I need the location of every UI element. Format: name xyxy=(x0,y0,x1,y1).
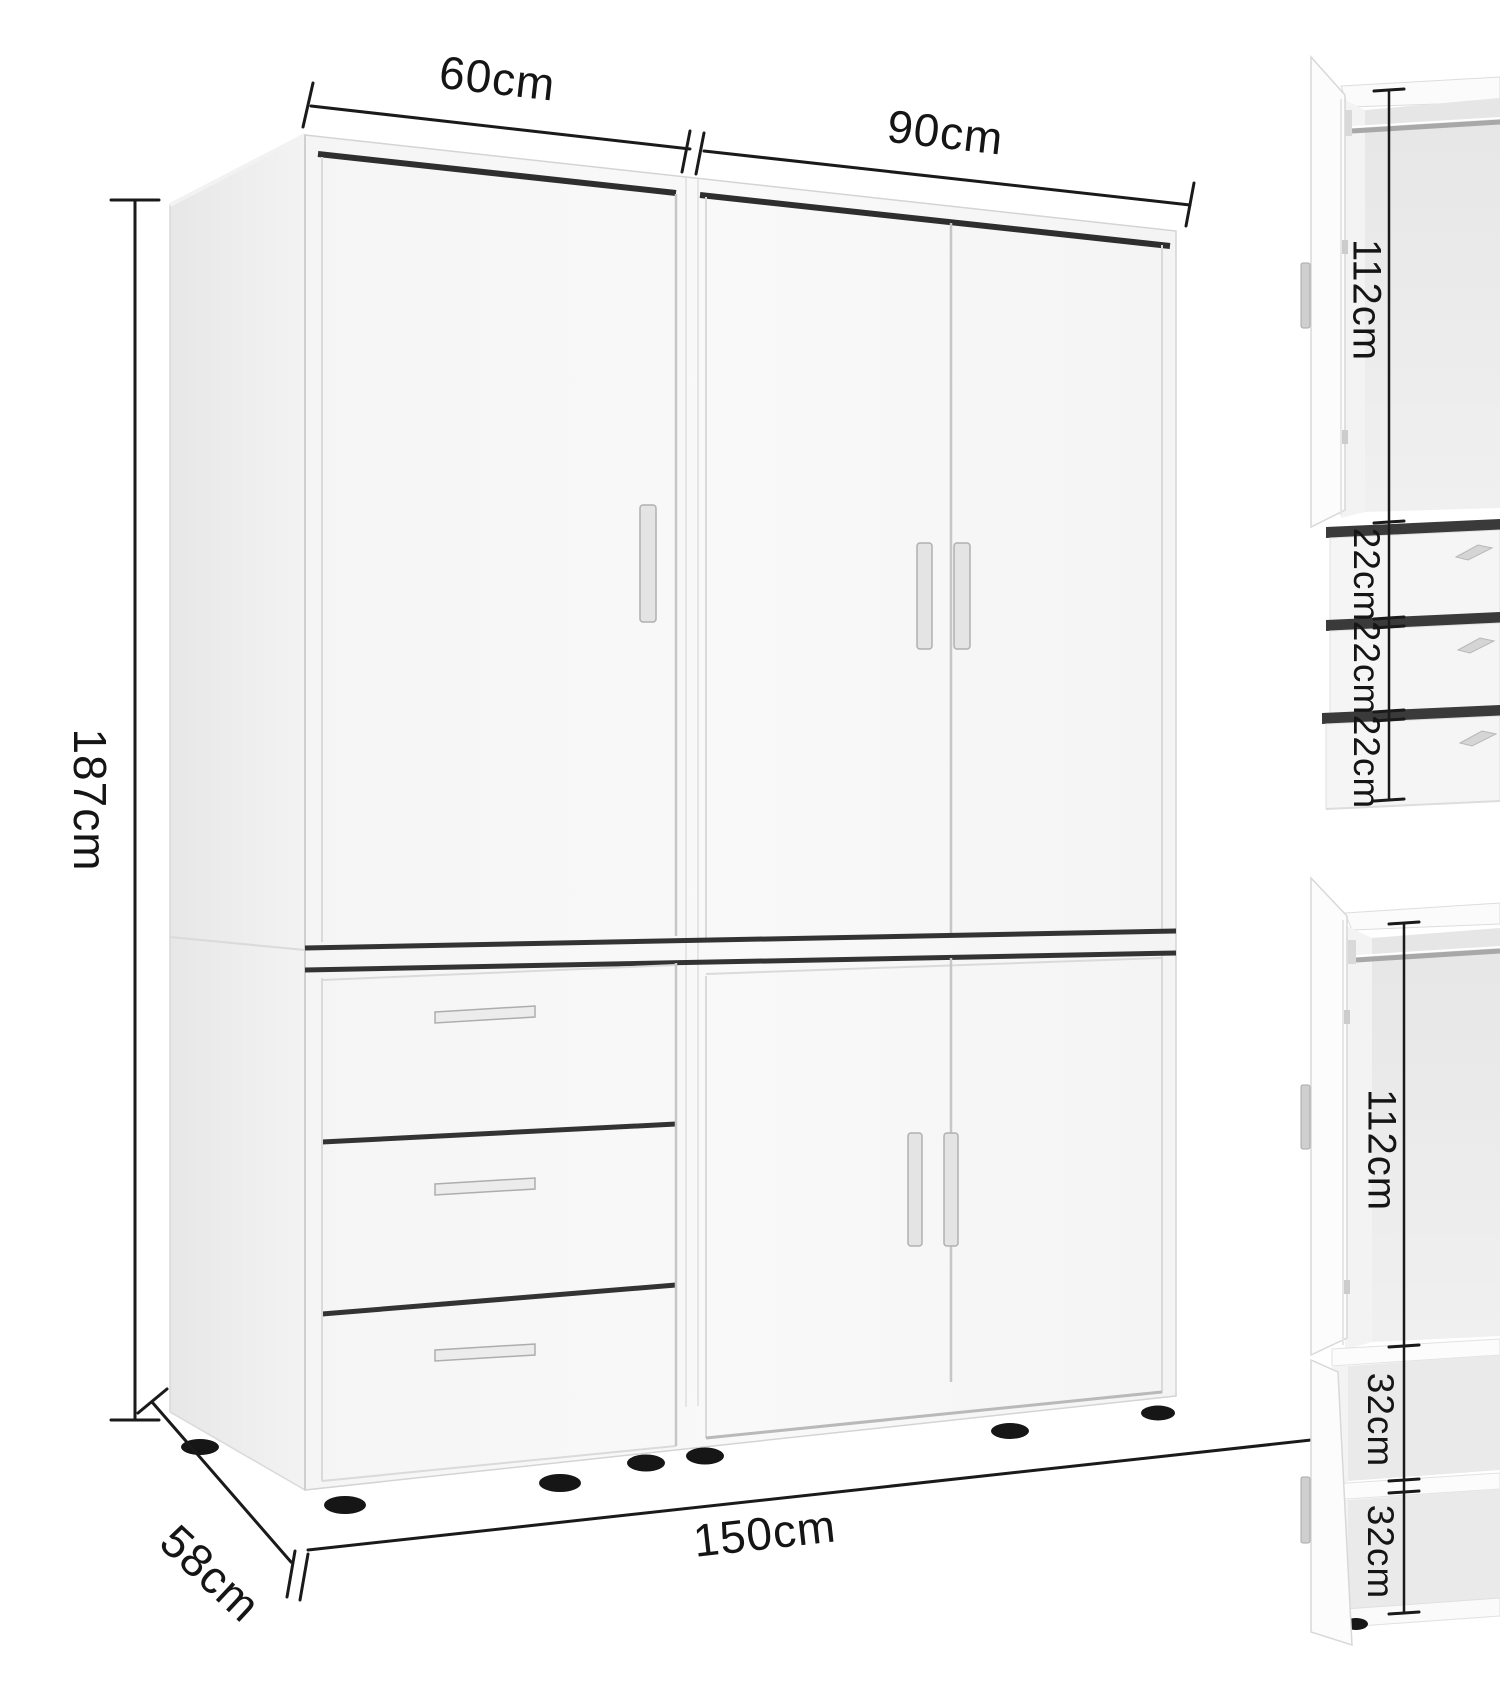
hinge xyxy=(1344,1010,1350,1024)
label-depth-58cm: 58cm xyxy=(150,1514,271,1631)
foot xyxy=(1141,1406,1175,1421)
detail-view-bottom: 112cm 32cm 32cm xyxy=(1301,878,1500,1645)
label-drawer1-22cm: 22cm xyxy=(1346,528,1387,622)
dim-tick xyxy=(1389,1345,1419,1347)
detail-bottom-lower-door-handle xyxy=(1301,1477,1310,1543)
label-drawer2-22cm: 22cm xyxy=(1346,621,1387,715)
detail-view-top: 112cm 22cm 22cm 22cm xyxy=(1301,57,1500,809)
door3-handle xyxy=(954,543,970,649)
door2-handle xyxy=(917,543,932,649)
foot xyxy=(991,1423,1029,1439)
detail-top-door-handle xyxy=(1301,263,1310,328)
detail-top-open-door xyxy=(1311,57,1345,527)
label-width-90cm: 90cm xyxy=(885,100,1007,165)
lower-door-right-handle xyxy=(944,1133,958,1246)
label-compartment1-32cm: 32cm xyxy=(1360,1373,1401,1467)
diagram-canvas: 60cm 90cm 187cm 58cm 150cm xyxy=(0,0,1500,1700)
dim-tick xyxy=(696,133,704,174)
foot xyxy=(539,1474,581,1492)
dim-tick xyxy=(300,1554,308,1600)
foot xyxy=(324,1496,366,1514)
label-interior-112cm-top: 112cm xyxy=(1344,239,1388,361)
dim-tick xyxy=(138,1389,167,1413)
dimension-187cm: 187cm xyxy=(64,200,159,1420)
dim-tick xyxy=(1389,1479,1419,1481)
label-drawer3-22cm: 22cm xyxy=(1346,715,1387,809)
label-interior-112cm-bottom: 112cm xyxy=(1359,1089,1403,1211)
hinge xyxy=(1342,430,1348,444)
label-height-187cm: 187cm xyxy=(64,728,116,871)
label-total-width-150cm: 150cm xyxy=(691,1499,839,1566)
product-dimension-diagram: 60cm 90cm 187cm 58cm 150cm xyxy=(0,0,1500,1700)
foot xyxy=(686,1448,724,1465)
foot xyxy=(627,1455,665,1472)
label-width-60cm: 60cm xyxy=(437,46,559,111)
dim-tick xyxy=(1389,1491,1419,1493)
rail-bracket xyxy=(1348,940,1356,964)
label-compartment2-32cm: 32cm xyxy=(1360,1505,1401,1599)
detail-bottom-top-panel xyxy=(1345,903,1500,930)
detail-bottom-upper-door-handle xyxy=(1301,1085,1310,1149)
lower-door-left-handle xyxy=(908,1133,922,1246)
front-face xyxy=(305,135,1176,1490)
door1-handle xyxy=(640,505,656,622)
dim-tick xyxy=(1374,521,1404,523)
dim-tick xyxy=(682,131,690,172)
dim-tick xyxy=(1389,1612,1419,1614)
detail-bottom-open-door-upper xyxy=(1311,878,1347,1355)
side-panel xyxy=(170,135,305,1490)
wardrobe-main-view xyxy=(170,135,1176,1514)
hinge xyxy=(1344,1280,1350,1294)
